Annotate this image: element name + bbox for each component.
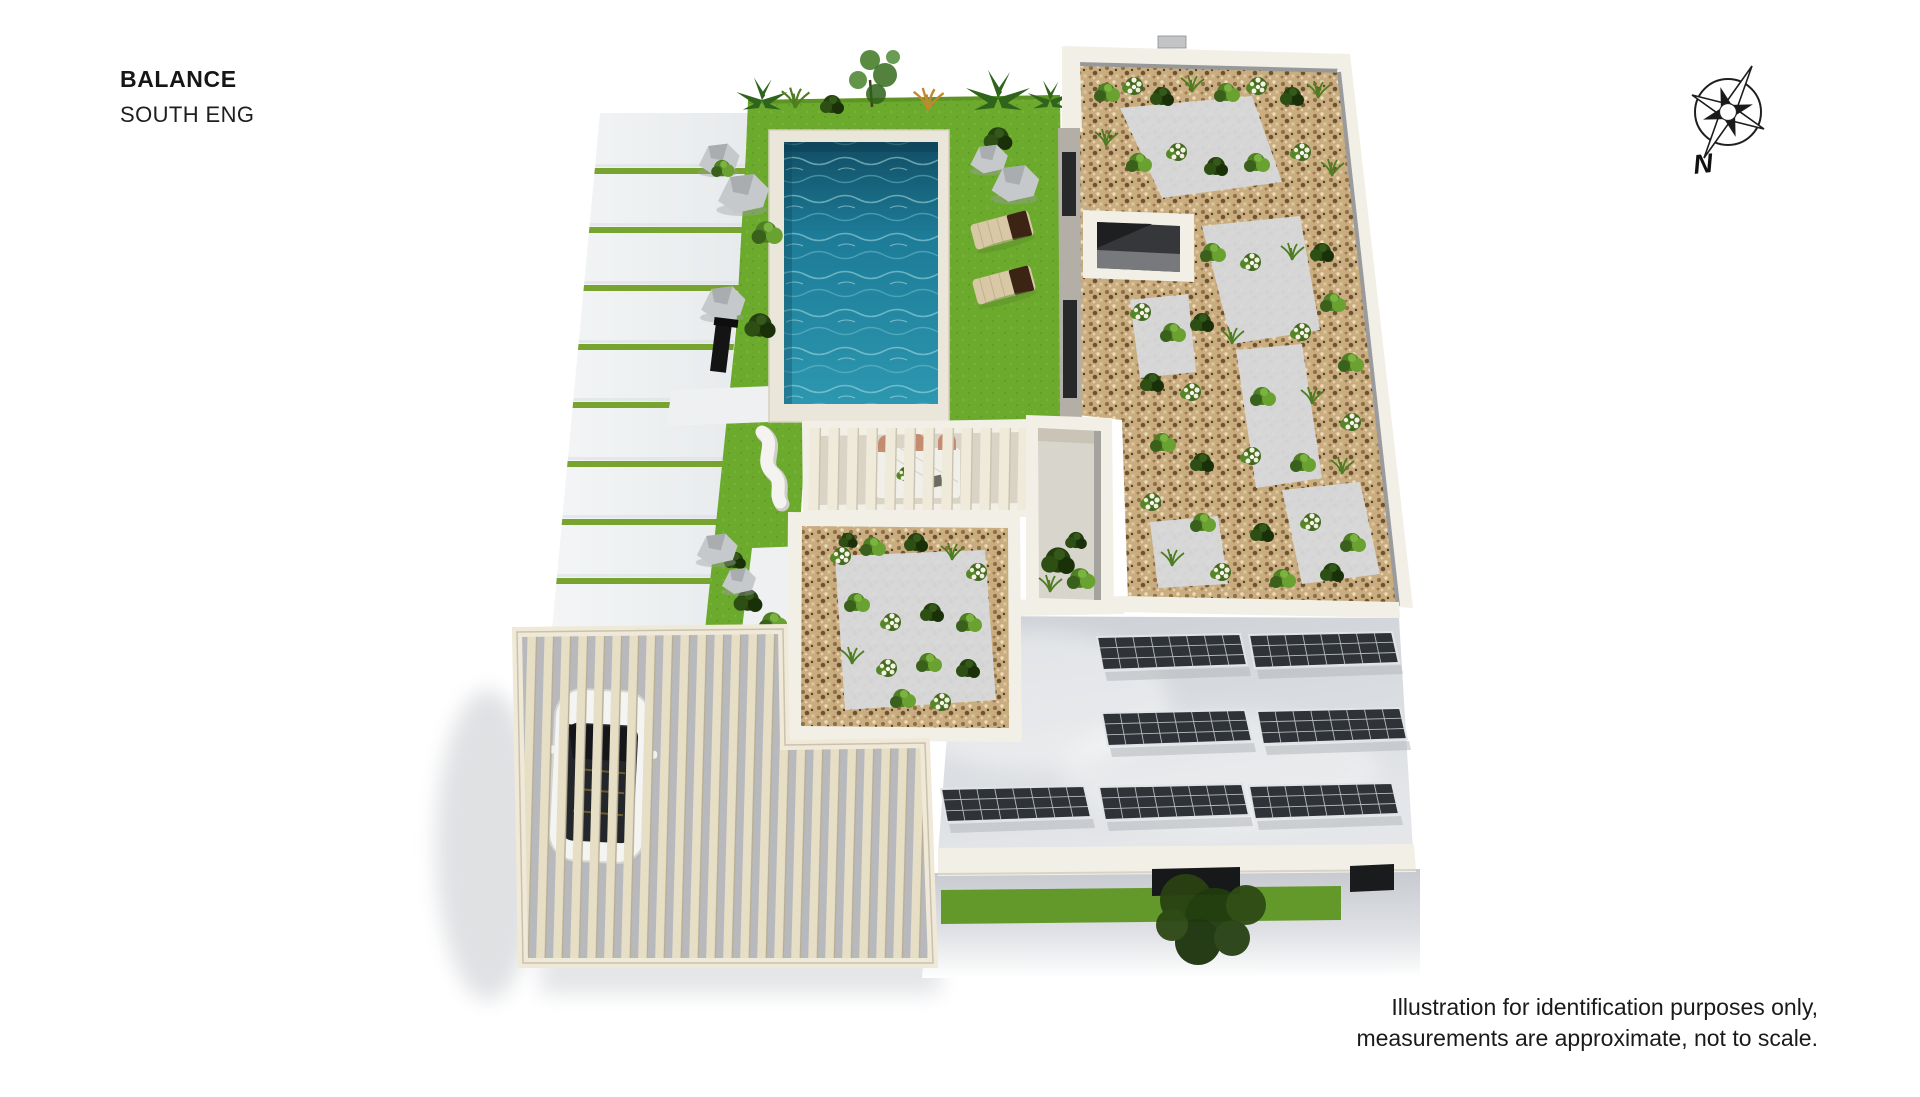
title-block: BALANCE SOUTH ENG	[120, 66, 254, 128]
site-plan-illustration: N	[0, 0, 1920, 1097]
west-facade	[1058, 128, 1082, 418]
lawn-walkway	[666, 386, 772, 426]
page-subtitle: SOUTH ENG	[120, 102, 254, 128]
solar-panel	[1099, 784, 1253, 831]
solar-panel	[1102, 710, 1256, 757]
facade-lawn-strip	[941, 886, 1341, 924]
disclaimer-line-1: Illustration for identification purposes…	[1356, 992, 1818, 1023]
disclaimer-note: Illustration for identification purposes…	[1356, 992, 1818, 1054]
solar-panel	[941, 786, 1095, 833]
lightwell-patio	[1026, 415, 1114, 614]
solar-panel	[1249, 783, 1403, 830]
page-title: BALANCE	[120, 66, 254, 93]
roof-vent	[1158, 36, 1186, 48]
disclaimer-line-2: measurements are approximate, not to sca…	[1356, 1023, 1818, 1054]
seating-pergola	[802, 419, 1036, 517]
facade-window	[1063, 300, 1077, 398]
compass-north-label: N	[1692, 148, 1715, 180]
solar-panel	[1249, 632, 1403, 679]
pool	[769, 130, 949, 422]
facade-window	[1062, 152, 1076, 216]
facade-window	[1350, 864, 1394, 892]
site-plan-page: N BALANCE SOUTH ENG Illustration for ide…	[0, 0, 1920, 1097]
skylight-opening	[1083, 210, 1194, 282]
courtyard-garden	[786, 512, 1022, 742]
solar-panel	[1097, 634, 1251, 681]
solar-panel	[1257, 708, 1411, 755]
compass-rose: N	[1692, 66, 1764, 180]
